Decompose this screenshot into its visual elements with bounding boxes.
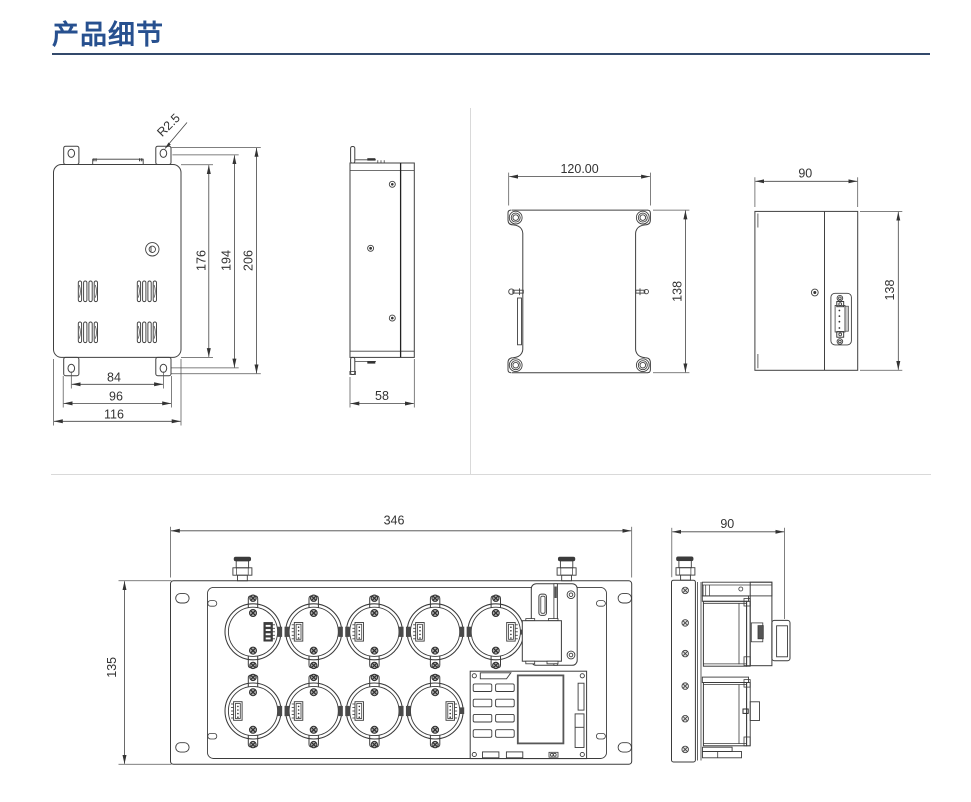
svg-text:90: 90 [798,167,812,181]
svg-text:96: 96 [109,389,123,403]
svg-text:138: 138 [671,281,685,302]
svg-text:176: 176 [195,250,209,271]
svg-text:138: 138 [883,280,897,301]
svg-text:116: 116 [104,407,124,421]
svg-text:90: 90 [720,517,734,531]
svg-text:206: 206 [242,250,256,271]
svg-text:120.00: 120.00 [560,162,598,176]
svg-text:346: 346 [384,513,405,527]
svg-text:194: 194 [220,250,234,271]
svg-text:135: 135 [105,657,119,678]
svg-text:58: 58 [375,389,389,403]
svg-text:R2.5: R2.5 [154,111,183,140]
svg-text:84: 84 [107,370,121,384]
